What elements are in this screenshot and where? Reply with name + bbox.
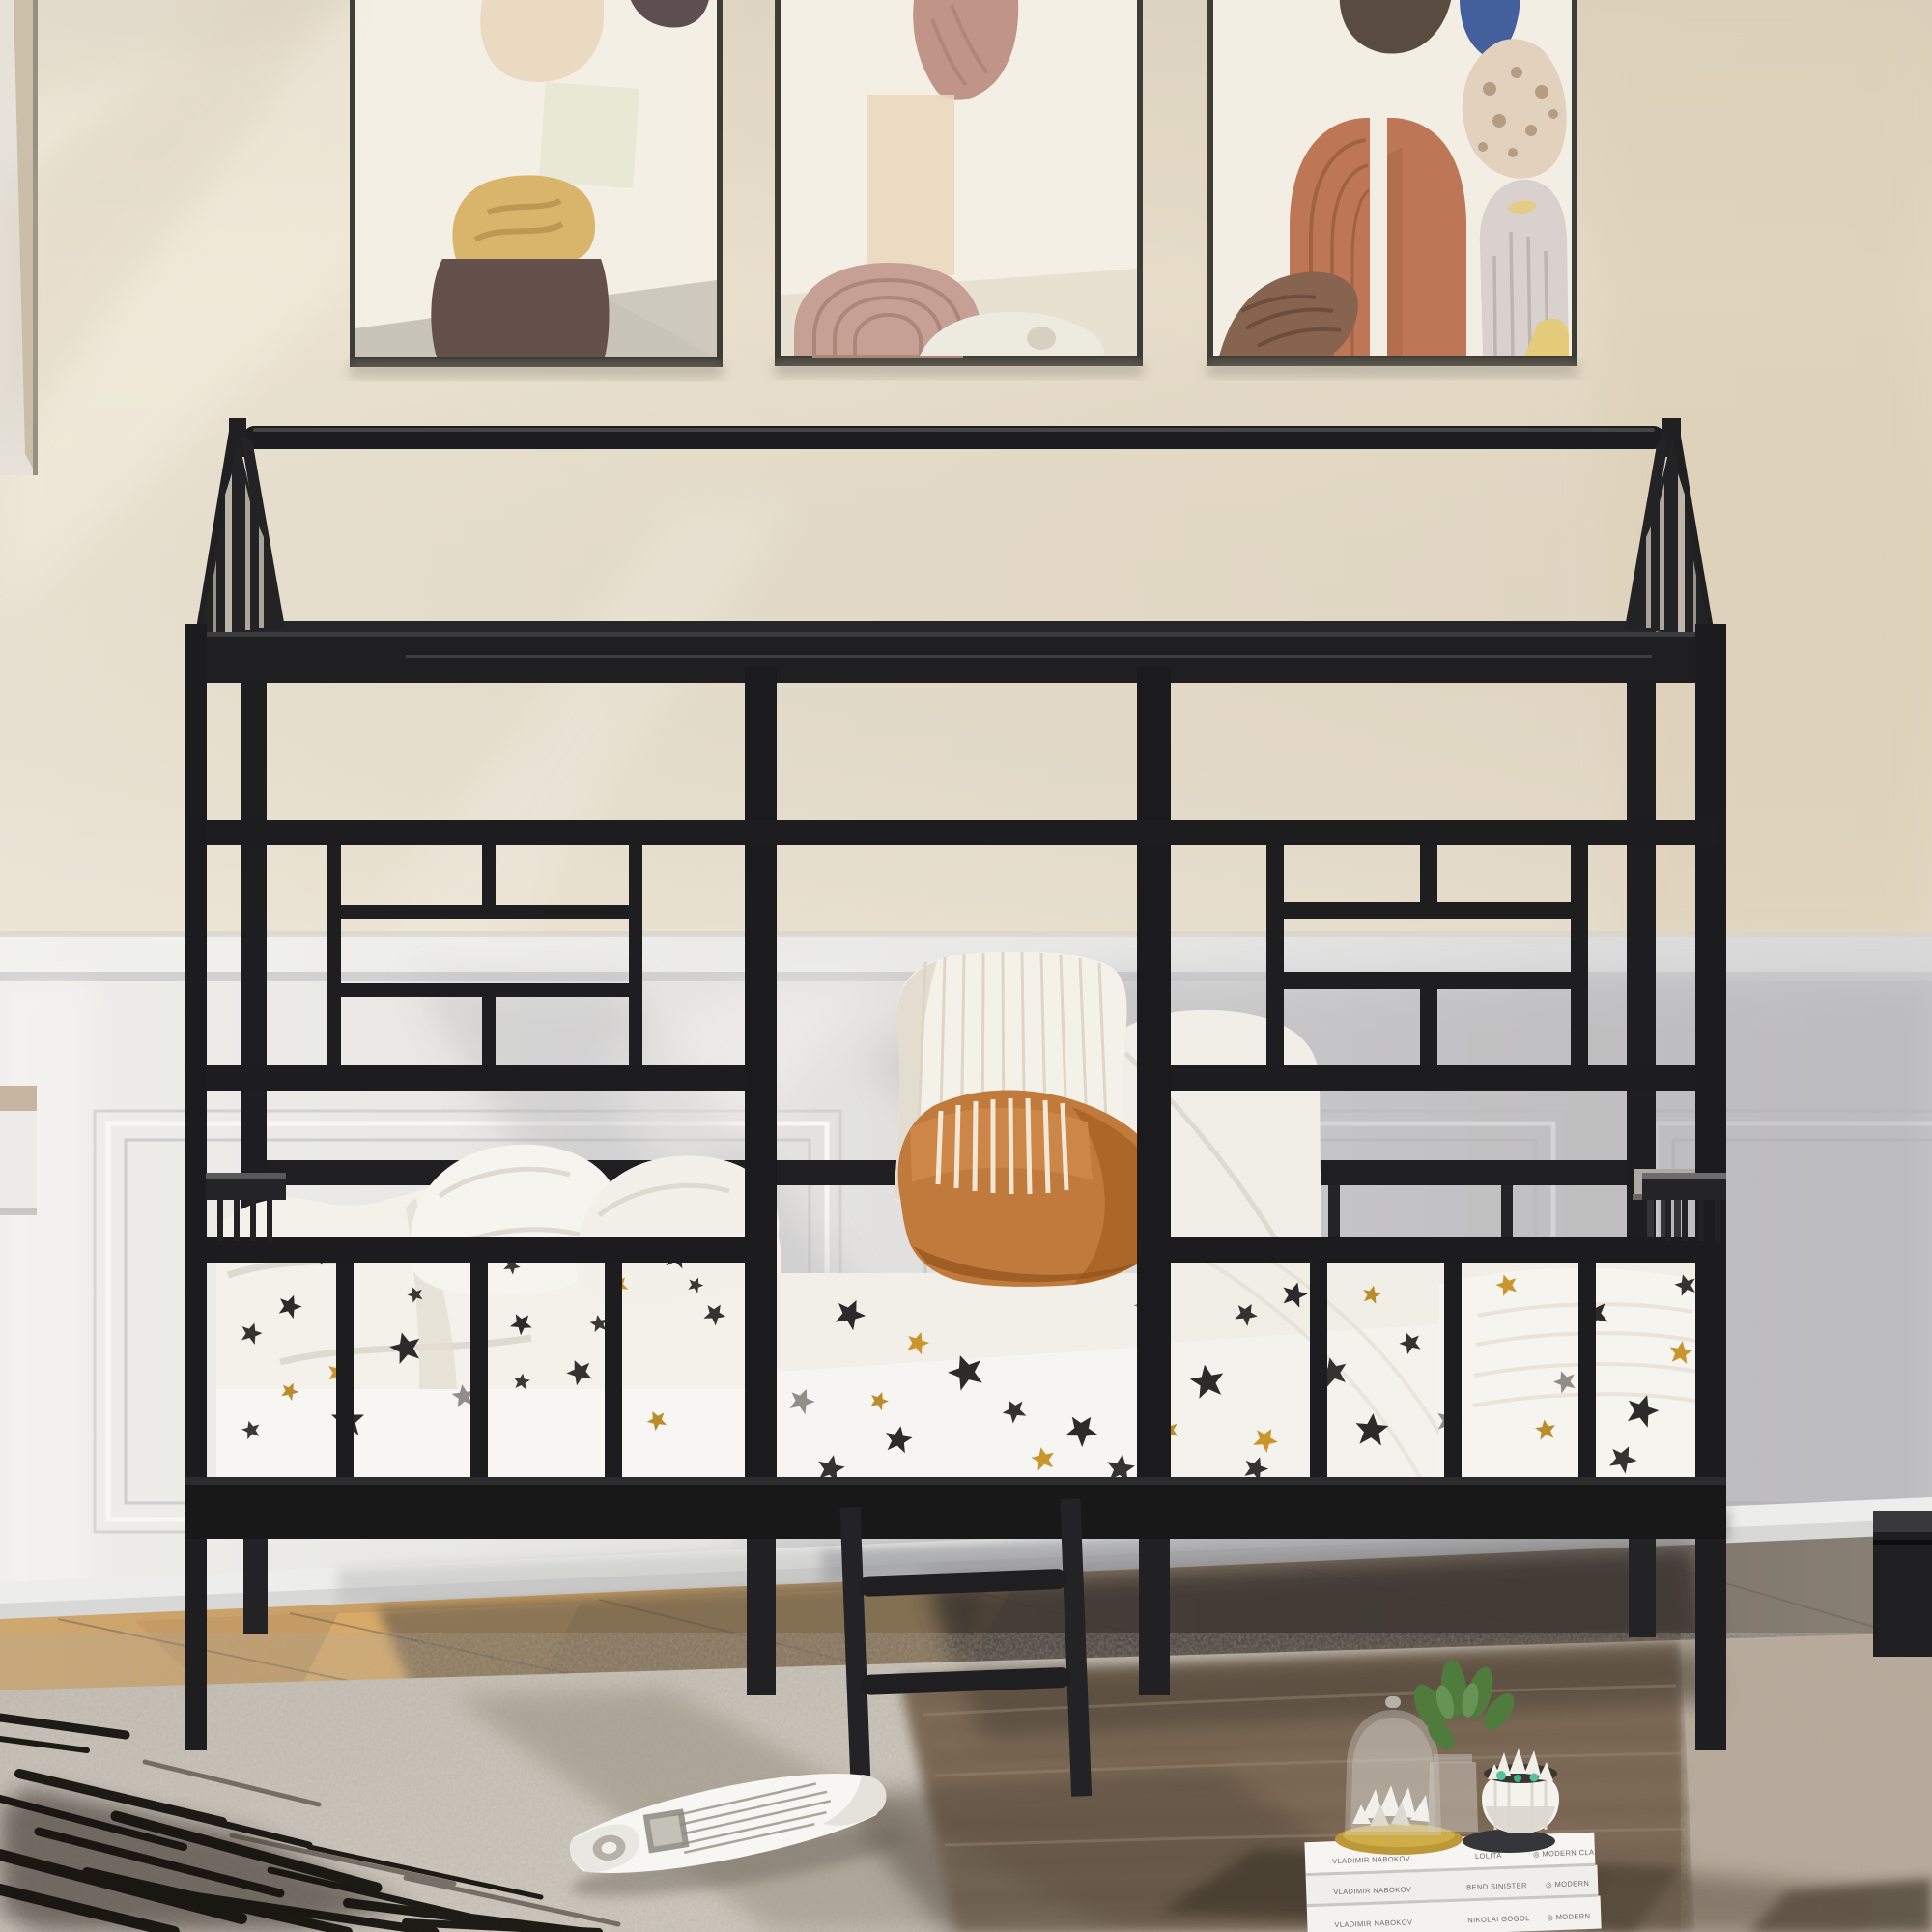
svg-text:◎ MODERN: ◎ MODERN	[1546, 1879, 1589, 1889]
svg-text:◎ MODERN: ◎ MODERN	[1547, 1912, 1590, 1922]
